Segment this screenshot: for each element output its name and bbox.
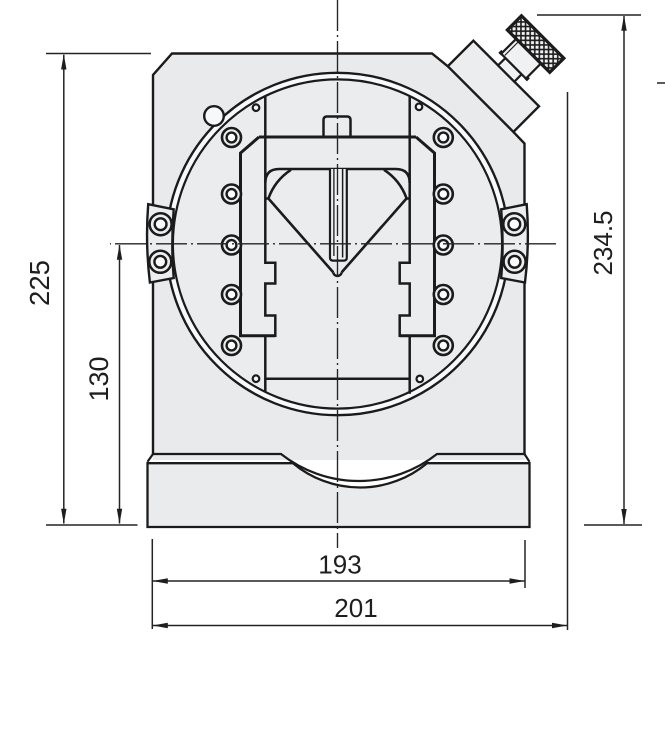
svg-text:225: 225 [24, 260, 55, 306]
svg-text:193: 193 [318, 550, 361, 580]
svg-text:201: 201 [334, 593, 377, 623]
svg-text:130: 130 [84, 356, 114, 401]
svg-text:234.5: 234.5 [588, 210, 618, 275]
